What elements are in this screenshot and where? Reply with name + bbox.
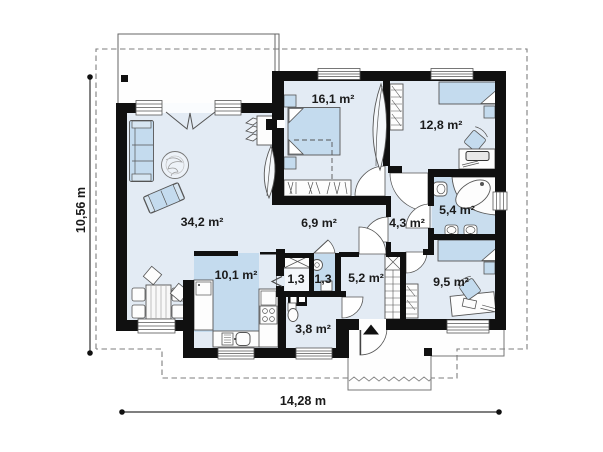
- svg-text:10,56 m: 10,56 m: [74, 187, 88, 233]
- svg-text:16,1 m²: 16,1 m²: [312, 92, 355, 106]
- svg-text:5,4 m²: 5,4 m²: [439, 203, 475, 217]
- svg-text:34,2 m²: 34,2 m²: [181, 215, 224, 229]
- svg-text:9,5 m²: 9,5 m²: [433, 275, 469, 289]
- svg-text:14,28 m: 14,28 m: [280, 394, 326, 408]
- svg-text:1,3: 1,3: [287, 272, 304, 286]
- svg-text:3,8 m²: 3,8 m²: [295, 322, 331, 336]
- svg-text:5,2 m²: 5,2 m²: [348, 271, 384, 285]
- svg-text:6,9 m²: 6,9 m²: [301, 216, 337, 230]
- svg-text:10,1 m²: 10,1 m²: [215, 268, 258, 282]
- svg-text:12,8 m²: 12,8 m²: [420, 118, 463, 132]
- svg-text:1,3: 1,3: [314, 272, 331, 286]
- svg-text:4,3 m²: 4,3 m²: [389, 216, 425, 230]
